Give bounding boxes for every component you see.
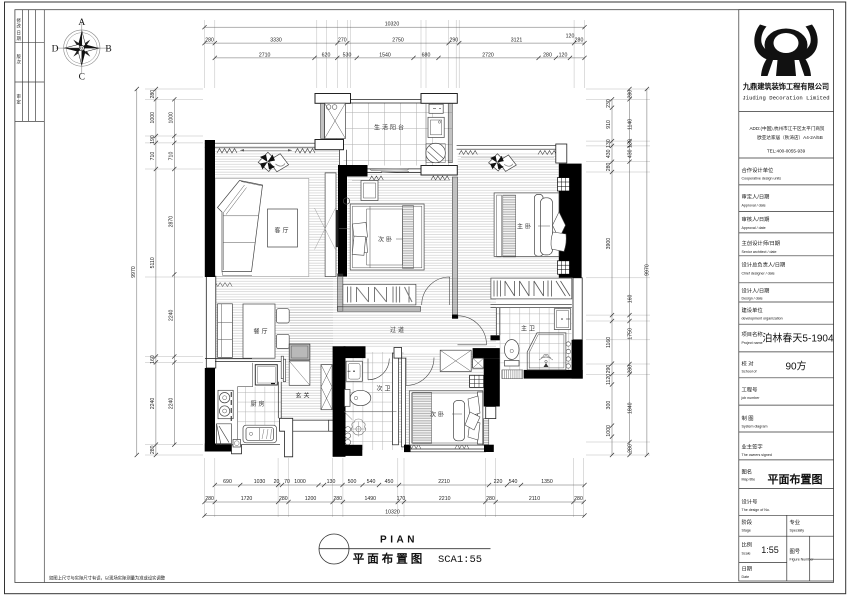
svg-text:280: 280: [205, 38, 214, 44]
svg-text:280: 280: [333, 496, 342, 502]
svg-text:Approval / date: Approval / date: [742, 204, 766, 208]
svg-text:阶段: 阶段: [742, 518, 753, 526]
svg-text:A: A: [78, 18, 85, 28]
svg-text:220: 220: [494, 479, 503, 485]
svg-text:Figure Number: Figure Number: [790, 558, 815, 562]
svg-text:九鼎建筑装饰工程有限公司: 九鼎建筑装饰工程有限公司: [742, 82, 829, 91]
svg-text:230: 230: [606, 99, 612, 108]
svg-text:10320: 10320: [385, 22, 400, 28]
svg-text:设计号: 设计号: [742, 498, 758, 506]
svg-text:业主签字: 业主签字: [742, 443, 763, 451]
svg-text:540: 540: [367, 479, 376, 485]
svg-text:设计人/日期: 设计人/日期: [742, 287, 770, 295]
svg-text:2870: 2870: [169, 216, 175, 228]
svg-text:2720: 2720: [482, 52, 494, 58]
svg-text:120: 120: [566, 34, 575, 40]
svg-text:280: 280: [150, 90, 156, 99]
svg-text:280: 280: [205, 496, 214, 502]
svg-text:主创设计师/日期: 主创设计师/日期: [742, 239, 781, 247]
svg-text:Cooperative design units: Cooperative design units: [742, 177, 782, 181]
svg-text:SCA1:55: SCA1:55: [438, 554, 482, 566]
svg-text:The owners signed: The owners signed: [742, 453, 772, 457]
svg-text:审定人/日期: 审定人/日期: [742, 193, 770, 201]
svg-text:Senior architect / date: Senior architect / date: [742, 250, 777, 254]
svg-text:比例: 比例: [742, 541, 753, 549]
svg-text:项目名称: 项目名称: [742, 330, 764, 338]
svg-text:120: 120: [559, 52, 568, 58]
svg-text:130: 130: [606, 139, 612, 148]
svg-text:2240: 2240: [169, 310, 175, 322]
svg-text:TEL:400-0055-939: TEL:400-0055-939: [767, 149, 806, 154]
svg-text:1160: 1160: [606, 337, 612, 348]
svg-text:工程号: 工程号: [742, 386, 758, 394]
svg-text:9970: 9970: [131, 266, 137, 278]
svg-text:160: 160: [150, 355, 156, 364]
svg-text:C: C: [79, 73, 85, 83]
svg-text:290: 290: [606, 365, 612, 374]
svg-text:1120: 1120: [606, 374, 612, 385]
svg-text:厨房: 厨房: [250, 400, 266, 408]
svg-text:1000: 1000: [606, 425, 612, 437]
svg-text:B: B: [105, 45, 111, 55]
svg-text:1:55: 1:55: [761, 545, 779, 555]
svg-text:190: 190: [150, 135, 156, 144]
svg-text:平面布置图: 平面布置图: [768, 472, 823, 486]
svg-text:1000: 1000: [150, 112, 156, 124]
svg-text:玄关: 玄关: [295, 392, 311, 400]
svg-text:Approval / date: Approval / date: [742, 226, 766, 230]
svg-text:280: 280: [627, 365, 633, 374]
svg-text:130: 130: [627, 139, 633, 148]
svg-text:Map title: Map title: [742, 478, 756, 482]
svg-text:客厅: 客厅: [274, 227, 290, 235]
svg-text:430: 430: [606, 149, 612, 158]
svg-text:270: 270: [338, 38, 347, 44]
svg-text:2750: 2750: [392, 38, 404, 44]
svg-text:PIAN: PIAN: [380, 535, 418, 546]
svg-text:1200: 1200: [305, 496, 317, 502]
svg-text:430: 430: [627, 149, 633, 158]
svg-text:次卫: 次卫: [376, 385, 392, 393]
svg-text:1030: 1030: [254, 479, 266, 485]
svg-text:Project name: Project name: [742, 341, 763, 345]
svg-text:制 图: 制 图: [742, 414, 754, 422]
svg-text:过道: 过道: [390, 326, 406, 334]
svg-text:1490: 1490: [365, 496, 377, 502]
svg-text:3330: 3330: [270, 38, 282, 44]
svg-text:500: 500: [348, 479, 357, 485]
svg-text:280: 280: [575, 38, 584, 44]
svg-text:20: 20: [274, 479, 280, 485]
svg-text:2240: 2240: [169, 398, 175, 410]
svg-text:次卧: 次卧: [430, 411, 446, 419]
svg-text:生活阳台: 生活阳台: [374, 124, 406, 132]
svg-text:280: 280: [486, 496, 495, 502]
svg-text:图名: 图名: [742, 468, 753, 476]
svg-text:Design / date: Design / date: [742, 297, 763, 301]
svg-text:建设单位: 建设单位: [742, 306, 764, 314]
svg-text:530: 530: [343, 52, 352, 58]
svg-text:设计总负责人/日期: 设计总负责人/日期: [742, 261, 786, 269]
svg-text:90方: 90方: [785, 360, 806, 373]
svg-text:Specialty: Specialty: [790, 529, 805, 533]
svg-text:次: 次: [16, 59, 21, 66]
svg-text:The design of No.: The design of No.: [742, 508, 770, 512]
svg-text:5110: 5110: [150, 257, 156, 268]
svg-text:合作设计单位: 合作设计单位: [742, 166, 774, 174]
svg-text:审核人/日期: 审核人/日期: [742, 215, 770, 223]
svg-text:9970: 9970: [645, 264, 651, 276]
svg-text:School of: School of: [742, 370, 757, 374]
svg-text:泊林春天5-1904: 泊林春天5-1904: [762, 332, 834, 345]
svg-text:3900: 3900: [606, 238, 612, 250]
svg-text:1000: 1000: [169, 112, 175, 124]
svg-text:2240: 2240: [150, 398, 156, 410]
svg-text:1540: 1540: [379, 52, 391, 58]
svg-text:平面布置图: 平面布置图: [353, 552, 426, 566]
svg-text:1140: 1140: [627, 119, 633, 130]
svg-text:280: 280: [574, 496, 583, 502]
svg-text:主卧: 主卧: [517, 223, 533, 231]
svg-text:2710: 2710: [259, 52, 271, 58]
svg-text:1720: 1720: [241, 496, 253, 502]
svg-text:280: 280: [543, 52, 552, 58]
svg-text:70: 70: [284, 479, 290, 485]
svg-text:Chief designer / date: Chief designer / date: [742, 272, 775, 276]
svg-text:校 对: 校 对: [742, 360, 755, 368]
svg-text:300: 300: [606, 401, 612, 410]
svg-text:development organization: development organization: [742, 317, 783, 321]
svg-text:280: 280: [627, 444, 633, 453]
svg-text:Scale: Scale: [742, 552, 751, 556]
svg-text:160: 160: [627, 294, 633, 303]
svg-text:280: 280: [627, 90, 633, 99]
svg-text:710: 710: [169, 152, 175, 161]
svg-text:如图上尺寸与实际尺寸有误，以现场实际测量为准或设实调整: 如图上尺寸与实际尺寸有误，以现场实际测量为准或设实调整: [49, 575, 166, 582]
svg-text:620: 620: [322, 52, 331, 58]
svg-text:D: D: [52, 45, 59, 55]
svg-text:450: 450: [385, 479, 394, 485]
svg-text:job number: job number: [741, 396, 761, 400]
svg-text:280: 280: [606, 162, 612, 171]
svg-text:System diagram: System diagram: [742, 425, 768, 429]
svg-text:Date: Date: [742, 575, 750, 579]
svg-text:2110: 2110: [529, 496, 540, 502]
svg-text:910: 910: [606, 120, 612, 129]
svg-text:280: 280: [150, 445, 156, 454]
svg-text:690: 690: [223, 479, 232, 485]
svg-text:10320: 10320: [385, 509, 400, 515]
svg-text:餐厅: 餐厅: [253, 328, 269, 336]
svg-text:图号: 图号: [790, 547, 801, 555]
svg-text:Jiuding Decoration Limited: Jiuding Decoration Limited: [742, 95, 829, 102]
svg-text:专业: 专业: [790, 518, 801, 526]
svg-text:次卧: 次卧: [378, 236, 394, 244]
svg-text:1000: 1000: [294, 479, 306, 485]
svg-text:540: 540: [509, 479, 518, 485]
svg-text:Stage: Stage: [742, 529, 751, 533]
svg-text:680: 680: [422, 52, 431, 58]
svg-text:1750: 1750: [627, 328, 633, 340]
svg-text:170: 170: [397, 496, 406, 502]
svg-text:280: 280: [279, 496, 288, 502]
svg-text:2210: 2210: [438, 479, 450, 485]
svg-text:3121: 3121: [511, 38, 523, 44]
svg-text:ADD:(中国),杭州市江干区太平门商贸: ADD:(中国),杭州市江干区太平门商贸: [749, 125, 824, 132]
svg-text:定: 定: [16, 99, 21, 106]
svg-text:710: 710: [150, 152, 156, 161]
svg-text:290: 290: [449, 38, 458, 44]
svg-text:1840: 1840: [627, 402, 633, 414]
svg-text:欧亚达家居（秋涛店）A4-2A/5B: 欧亚达家居（秋涛店）A4-2A/5B: [757, 134, 823, 141]
svg-text:2210: 2210: [439, 496, 451, 502]
svg-text:1350: 1350: [541, 479, 553, 485]
svg-text:主卫: 主卫: [521, 325, 537, 333]
svg-text:130: 130: [327, 479, 336, 485]
svg-text:日期: 日期: [742, 566, 753, 573]
svg-text:改: 改: [16, 23, 21, 30]
